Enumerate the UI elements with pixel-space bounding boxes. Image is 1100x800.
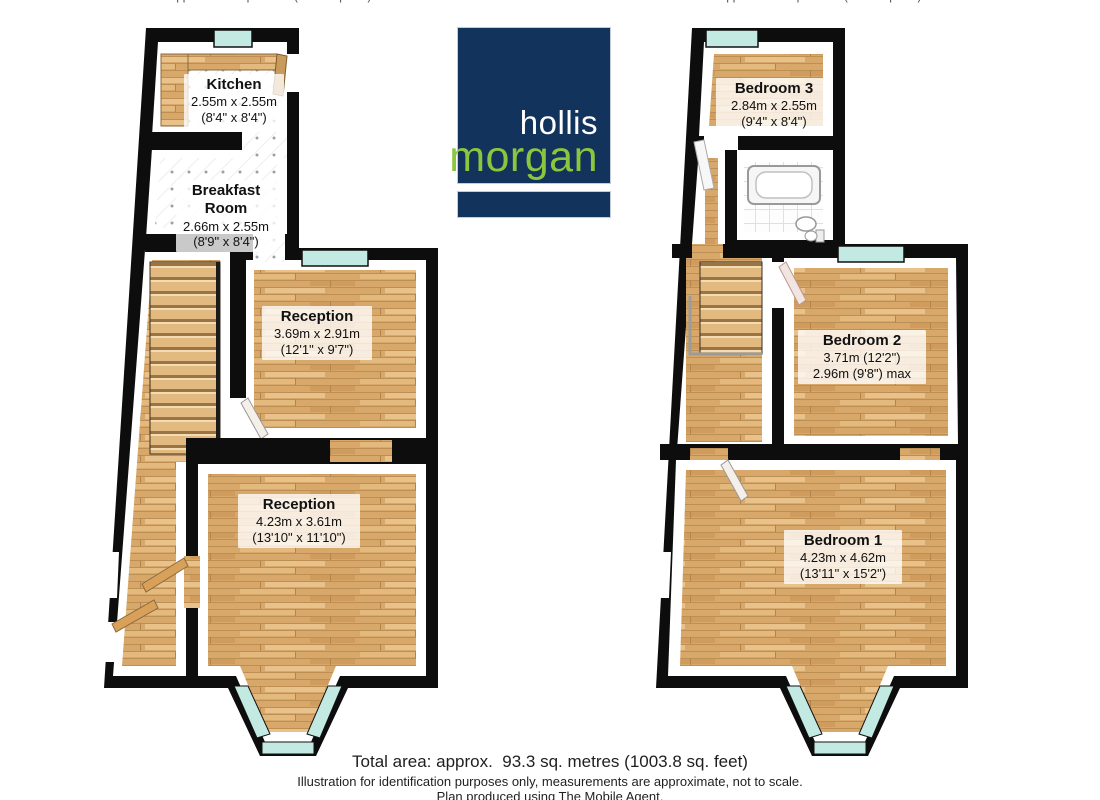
first-floor-plan (655, 28, 968, 756)
room-label-bedroom-2: Bedroom 2 3.71m (12'2") 2.96m (9'8") max (798, 330, 926, 384)
room-name: Breakfast Room (179, 182, 273, 219)
ground-floor-plan (101, 28, 438, 756)
room-label-bedroom-1: Bedroom 1 4.23m x 4.62m (13'11" x 15'2") (784, 530, 902, 584)
hall-window-opening (102, 552, 119, 598)
room-label-bedroom-3: Bedroom 3 2.84m x 2.55m (9'4" x 8'4") (716, 78, 832, 132)
kitchen-counter-top (188, 54, 277, 70)
room-label-reception-1: Reception 3.69m x 2.91m (12'1" x 9'7") (262, 306, 372, 360)
landing-stairs (700, 262, 762, 354)
reception-divider-opening (330, 440, 392, 462)
ground-floor-area-caption: Approx. 46.6 sq. metres (501.6 sq. feet) (160, 0, 380, 3)
room-dim-imperial: (13'11" x 15'2") (787, 566, 899, 582)
room-name: Kitchen (187, 76, 281, 94)
room-dim-imperial: (12'1" x 9'7") (265, 342, 369, 358)
kitchen-window-glass (214, 30, 252, 47)
bathroom-door-opening (704, 136, 738, 150)
total-area-text: Total area: approx. 93.3 sq. metres (100… (0, 752, 1100, 772)
bedroom1-window-opening (655, 552, 671, 598)
stairs (150, 262, 220, 454)
floorplan-page: Approx. 46.6 sq. metres (501.6 sq. feet)… (0, 0, 1100, 800)
bedroom2-exit-opening (900, 448, 940, 460)
landing-passage (692, 244, 723, 258)
room-name: Bedroom 3 (719, 80, 829, 98)
logo-wordmark: hollis morgan (449, 106, 598, 177)
disclaimer-text: Illustration for identification purposes… (0, 774, 1100, 789)
room-dim-metric: 3.69m x 2.91m (265, 326, 369, 342)
room-dim-imperial: (13'10" x 11'10") (241, 530, 357, 546)
room-dim-metric: 3.71m (12'2") (801, 350, 923, 366)
room-name: Reception (241, 496, 357, 514)
kitchen-door-opening (287, 54, 299, 92)
room-dim-imperial: (8'4" x 8'4") (187, 110, 281, 126)
room-dim-imperial: 2.96m (9'8") max (801, 366, 923, 382)
room-label-reception-2: Reception 4.23m x 3.61m (13'10" x 11'10"… (238, 494, 360, 548)
kitchen-breakfast-wall (150, 132, 242, 150)
bedroom1-door-opening (690, 448, 728, 460)
toilet-bowl (805, 231, 817, 241)
room-name: Bedroom 1 (787, 532, 899, 550)
breakfast-hall-wall-right (285, 234, 299, 252)
reception1-window-glass (302, 250, 368, 266)
bath-tub-inner (756, 172, 812, 198)
room-dim-metric: 4.23m x 3.61m (241, 514, 357, 530)
bedroom2-window-glass (838, 246, 904, 262)
bedroom1-floor (680, 470, 946, 732)
produced-by-text: Plan produced using The Mobile Agent. (0, 789, 1100, 800)
bathroom-landing-wall (725, 150, 737, 248)
room-dim-imperial: (9'4" x 8'4") (719, 114, 829, 130)
hollis-morgan-logo: hollis morgan (457, 27, 611, 184)
logo-word-morgan: morgan (449, 139, 598, 177)
room-dim-metric: 2.66m x 2.55m (179, 219, 273, 235)
room-label-kitchen: Kitchen 2.55m x 2.55m (8'4" x 8'4") (184, 74, 284, 128)
room-dim-metric: 4.23m x 4.62m (787, 550, 899, 566)
room-dim-metric: 2.84m x 2.55m (719, 98, 829, 114)
room-name: Bedroom 2 (801, 332, 923, 350)
room-name: Reception (265, 308, 369, 326)
room-dim-metric: 2.55m x 2.55m (187, 94, 281, 110)
bedroom3-window-glass (706, 30, 758, 47)
sink (796, 217, 816, 231)
kitchen-breakfast-opening (242, 132, 287, 158)
first-floor-area-caption: Approx. 46.7 sq. metres (502.2 sq. feet) (710, 0, 930, 3)
logo-bottom-bar (457, 191, 611, 218)
room-label-breakfast-room: Breakfast Room 2.66m x 2.55m (8'9" x 8'4… (176, 180, 276, 252)
room-dim-imperial: (8'9" x 8'4") (179, 234, 273, 250)
mid-wall-stub (672, 244, 692, 258)
